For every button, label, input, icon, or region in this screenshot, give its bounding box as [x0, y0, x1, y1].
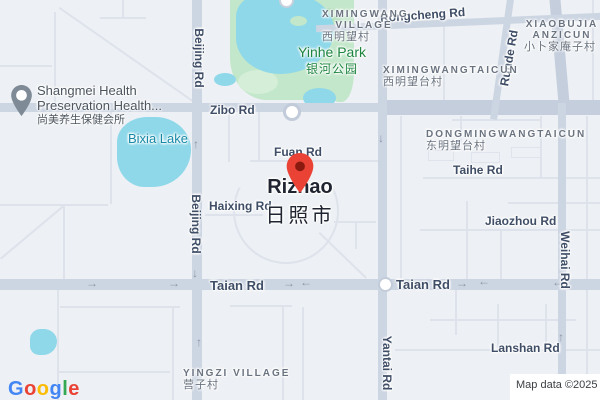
- one-way-arrow-icon: ↑: [193, 139, 199, 149]
- roundabout-taian-yantai: [378, 277, 393, 292]
- minor-road: [302, 307, 304, 400]
- minor-road: [400, 116, 402, 284]
- minor-road: [586, 116, 588, 400]
- park-label-cn: 银河公园: [290, 60, 374, 77]
- village-cn: 西明望台村: [383, 77, 443, 88]
- one-way-arrow-icon: ↑: [196, 337, 202, 347]
- road-label-lanshan: Lanshan Rd: [491, 341, 560, 355]
- poi-label-shangmei[interactable]: Shangmei Health Preservation Health... 尚…: [37, 84, 162, 128]
- park-label-yinhe: Yinhe Park 银河公园: [290, 44, 374, 77]
- road-label-beijing-north: Beijing Rd: [192, 26, 206, 90]
- village-label-dongmingwangtaicun: DONGMINGWANGTAICUN 东明望台村: [426, 129, 580, 140]
- minor-road-fuan: [250, 160, 378, 162]
- one-way-arrow-icon: ←: [478, 276, 490, 286]
- one-way-arrow-icon: ↓: [378, 133, 384, 143]
- red-map-pin-icon[interactable]: [286, 153, 314, 193]
- minor-road-jiaozhou: [420, 229, 600, 231]
- pond-southwest: [30, 329, 57, 355]
- bixia-lake-area: [117, 117, 191, 187]
- minor-road: [0, 205, 64, 259]
- park-patch-light: [238, 70, 278, 94]
- road-label-zibo: Zibo Rd: [210, 103, 255, 117]
- minor-road: [258, 112, 260, 162]
- lake-label-bixia: Bixia Lake: [128, 131, 188, 146]
- google-logo-letter: o: [24, 378, 37, 400]
- village-line: YINGZI VILLAGE: [183, 368, 290, 379]
- village-line: XIAOBUJIA: [526, 19, 598, 30]
- roundabout-zibo: [283, 103, 301, 121]
- minor-road: [172, 307, 174, 400]
- google-logo[interactable]: Google: [8, 378, 80, 400]
- road-label-beijing-south: Beijing Rd: [189, 192, 203, 256]
- google-logo-letter: g: [50, 378, 63, 400]
- google-logo-letter: o: [37, 378, 50, 400]
- one-way-arrow-icon: ←: [300, 277, 312, 287]
- one-way-arrow-icon: →: [456, 278, 468, 288]
- google-logo-letter: G: [8, 378, 24, 400]
- minor-road: [0, 204, 108, 206]
- village-cn: 营子村: [183, 380, 219, 391]
- minor-road: [319, 232, 367, 279]
- building-outline: [471, 152, 500, 163]
- google-logo-letter: e: [68, 378, 80, 400]
- road-label-yantai: Yantai Rd: [380, 331, 394, 395]
- park-label-en: Yinhe Park: [290, 44, 374, 60]
- road-label-taian-east: Taian Rd: [396, 277, 450, 292]
- village-line: VILLAGE: [335, 20, 392, 31]
- minor-road: [430, 319, 576, 321]
- minor-road: [122, 0, 124, 17]
- village-label-yingzi: YINGZI VILLAGE 营子村: [183, 368, 278, 379]
- minor-road: [228, 112, 230, 162]
- minor-road: [63, 206, 65, 286]
- poi-name-line1: Shangmei Health: [37, 84, 162, 99]
- city-name-cn: 日照市: [250, 199, 350, 228]
- one-way-arrow-icon: ↓: [192, 268, 198, 278]
- village-label-xiaobujia: XIAOBUJIA ANZICUN 小卜家庵子村: [524, 19, 600, 41]
- minor-road-taihe: [423, 177, 600, 179]
- minor-road: [355, 221, 357, 249]
- gray-pin-icon: [11, 85, 32, 116]
- poi-pin-shangmei[interactable]: [11, 85, 32, 116]
- minor-road: [443, 24, 445, 104]
- village-line: DONGMINGWANGTAICUN: [426, 129, 586, 140]
- minor-road: [455, 289, 457, 335]
- one-way-arrow-icon: →: [283, 278, 295, 288]
- village-cn: 小卜家庵子村: [524, 42, 596, 53]
- building-outline: [511, 147, 542, 158]
- road-label-jiaozhou: Jiaozhou Rd: [485, 214, 556, 228]
- village-line: XIMINGWANG: [322, 9, 409, 20]
- minor-road: [0, 65, 52, 67]
- village-cn: 西明望村: [322, 32, 370, 43]
- road-label-taian-west: Taian Rd: [210, 278, 264, 293]
- pond-small-west: [214, 73, 236, 86]
- minor-road: [100, 17, 146, 19]
- minor-road: [60, 306, 180, 308]
- one-way-arrow-icon: →: [86, 278, 98, 288]
- village-line: XIMINGWANGTAICUN: [383, 65, 519, 76]
- map-canvas[interactable]: → → → → ← ← ← ↑ ↑ ↑ ↓ ↓ Rongcheng Rd Zib…: [0, 0, 600, 400]
- minor-road: [500, 229, 502, 285]
- minor-road: [282, 305, 284, 400]
- one-way-arrow-icon: →: [168, 278, 180, 288]
- minor-road: [57, 371, 170, 373]
- road-label-weihai: Weihai Rd: [558, 227, 572, 293]
- village-label-ximingwang: XIMINGWANG VILLAGE 西明望村: [322, 9, 406, 31]
- village-line: ANZICUN: [533, 30, 592, 41]
- park-lake-island: [290, 16, 307, 26]
- village-cn: 东明望台村: [426, 141, 486, 152]
- poi-name-cn: 尚美养生保健会所: [37, 113, 162, 128]
- minor-road: [466, 201, 468, 285]
- attribution-text: Map data ©2025: [516, 379, 598, 391]
- road-label-taihe: Taihe Rd: [453, 163, 503, 177]
- poi-name-line2: Preservation Health...: [37, 99, 162, 114]
- village-label-ximingwangtaicun: XIMINGWANGTAICUN 西明望台村: [383, 65, 513, 76]
